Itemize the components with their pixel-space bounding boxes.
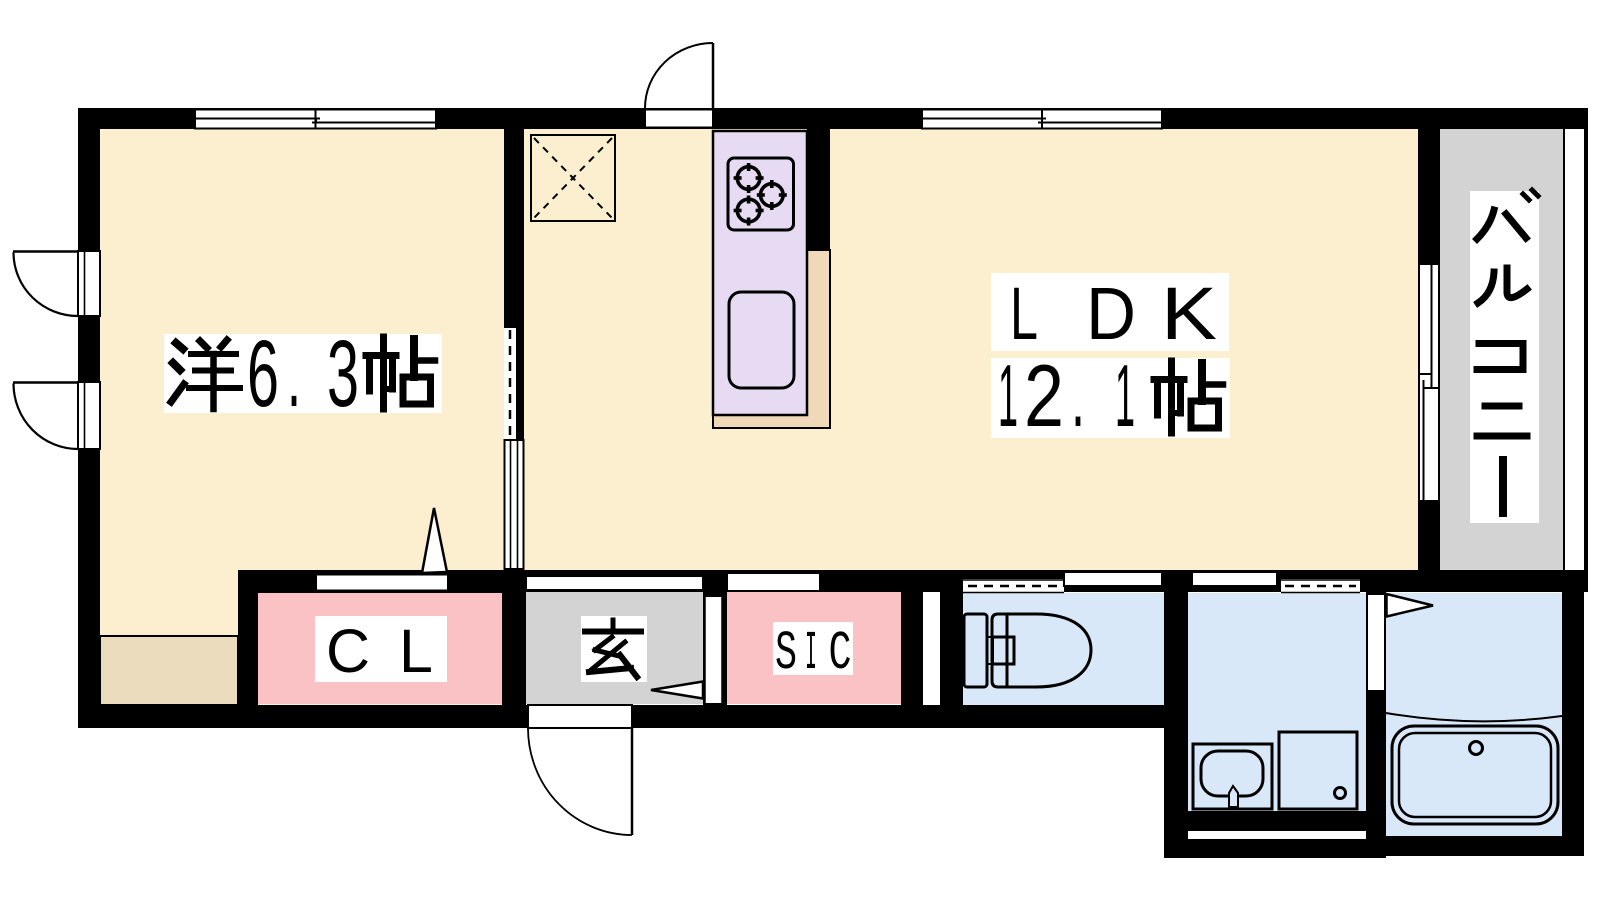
svg-text:C: C (829, 622, 852, 685)
svg-text:2: 2 (1024, 346, 1064, 445)
svg-text:L: L (399, 617, 433, 685)
svg-text:6: 6 (247, 321, 279, 427)
svg-text:1: 1 (998, 346, 1018, 445)
svg-text:.: . (287, 321, 301, 427)
svg-text:3: 3 (327, 321, 359, 427)
svg-text:1: 1 (1115, 346, 1135, 445)
svg-text:K: K (1161, 272, 1217, 355)
svg-text:L: L (1010, 272, 1038, 355)
svg-text:D: D (1086, 272, 1136, 355)
svg-text:.: . (1071, 346, 1085, 445)
svg-text:C: C (326, 617, 370, 685)
svg-text:S: S (775, 622, 797, 685)
svg-text:I: I (805, 622, 817, 685)
